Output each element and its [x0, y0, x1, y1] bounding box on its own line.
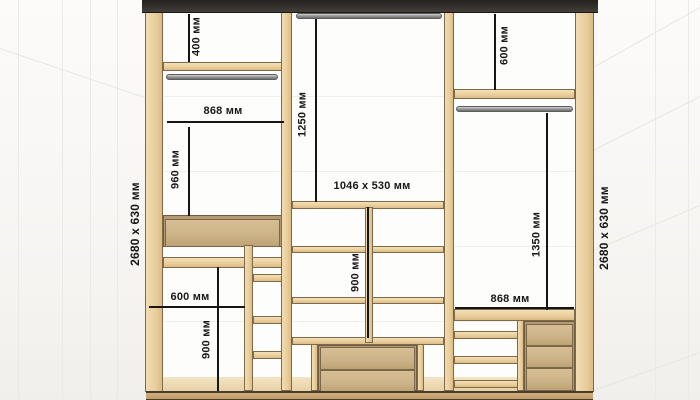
drawer-front[interactable]: [320, 347, 415, 370]
drawer-front[interactable]: [526, 324, 573, 346]
dimension-line: [217, 267, 219, 391]
dimension-label: 600 мм: [160, 291, 220, 304]
vertical-divider[interactable]: [244, 245, 253, 391]
plinth[interactable]: [146, 391, 593, 400]
shelf[interactable]: [454, 89, 575, 99]
right-side-panel[interactable]: [575, 10, 594, 392]
left-side-panel[interactable]: [145, 10, 163, 392]
dimension-line: [167, 121, 284, 123]
shelf[interactable]: [163, 257, 282, 268]
dimension-line: [546, 113, 548, 310]
dimension-label: 960 мм: [170, 148, 183, 192]
dimension-line: [315, 19, 317, 202]
vertical-divider[interactable]: [517, 320, 524, 391]
shelf[interactable]: [163, 62, 282, 71]
wall-line: [0, 48, 145, 98]
wardrobe-design-viewport[interactable]: 400 мм 868 мм 960 мм 600 мм 900 мм 1250 …: [0, 0, 700, 400]
wall-line: [18, 0, 19, 400]
dimension-label: 900 мм: [201, 318, 214, 362]
vertical-divider[interactable]: [311, 344, 318, 391]
wall-line: [655, 0, 656, 400]
dimension-label: 1046 x 530 мм: [322, 180, 422, 193]
shoe-shelf[interactable]: [454, 380, 518, 388]
wall-line: [62, 0, 63, 400]
dimension-line: [455, 307, 574, 309]
overall-size-label-right: 2680 x 630 мм: [597, 180, 611, 276]
wall-line: [593, 352, 700, 391]
wall-line: [90, 0, 91, 400]
shoe-shelf[interactable]: [454, 331, 518, 339]
hanging-rod[interactable]: [296, 13, 442, 19]
drawer-front[interactable]: [526, 346, 573, 368]
drawer-front[interactable]: [526, 368, 573, 391]
wall-line: [688, 0, 689, 400]
wardrobe-top-panel[interactable]: [142, 0, 598, 13]
drawer-front[interactable]: [165, 219, 280, 247]
vertical-divider[interactable]: [444, 12, 454, 391]
overall-size-label-left: 2680 x 630 мм: [128, 176, 142, 272]
back-grid-line: [163, 171, 575, 172]
dimension-label: 400 мм: [191, 15, 204, 59]
dimension-line: [188, 127, 190, 216]
shoe-shelf[interactable]: [253, 351, 283, 359]
dimension-label: 1250 мм: [297, 87, 310, 143]
dimension-line: [149, 306, 245, 308]
wall-line: [593, 7, 700, 68]
drawer-unit-left[interactable]: [163, 215, 282, 247]
shelf[interactable]: [454, 309, 575, 321]
drawer-front[interactable]: [320, 370, 415, 393]
shoe-shelf[interactable]: [253, 274, 283, 282]
hanging-rod[interactable]: [456, 106, 573, 112]
dimension-label: 868 мм: [193, 105, 253, 118]
drawer-unit-right[interactable]: [524, 321, 575, 391]
shoe-shelf[interactable]: [253, 316, 283, 324]
drawer-unit-center[interactable]: [318, 345, 417, 391]
dimension-label: 900 мм: [350, 251, 363, 295]
dimension-line: [367, 207, 369, 338]
dimension-label: 600 мм: [499, 24, 512, 68]
dimension-label: 1350 мм: [531, 207, 544, 263]
wall-line: [593, 96, 700, 151]
shoe-shelf[interactable]: [454, 356, 518, 364]
hanging-rod[interactable]: [166, 74, 278, 80]
wall-line: [117, 0, 118, 400]
dimension-line: [494, 14, 496, 90]
vertical-divider[interactable]: [417, 344, 424, 391]
vertical-divider[interactable]: [281, 12, 292, 391]
dimension-label: 868 мм: [480, 293, 540, 306]
